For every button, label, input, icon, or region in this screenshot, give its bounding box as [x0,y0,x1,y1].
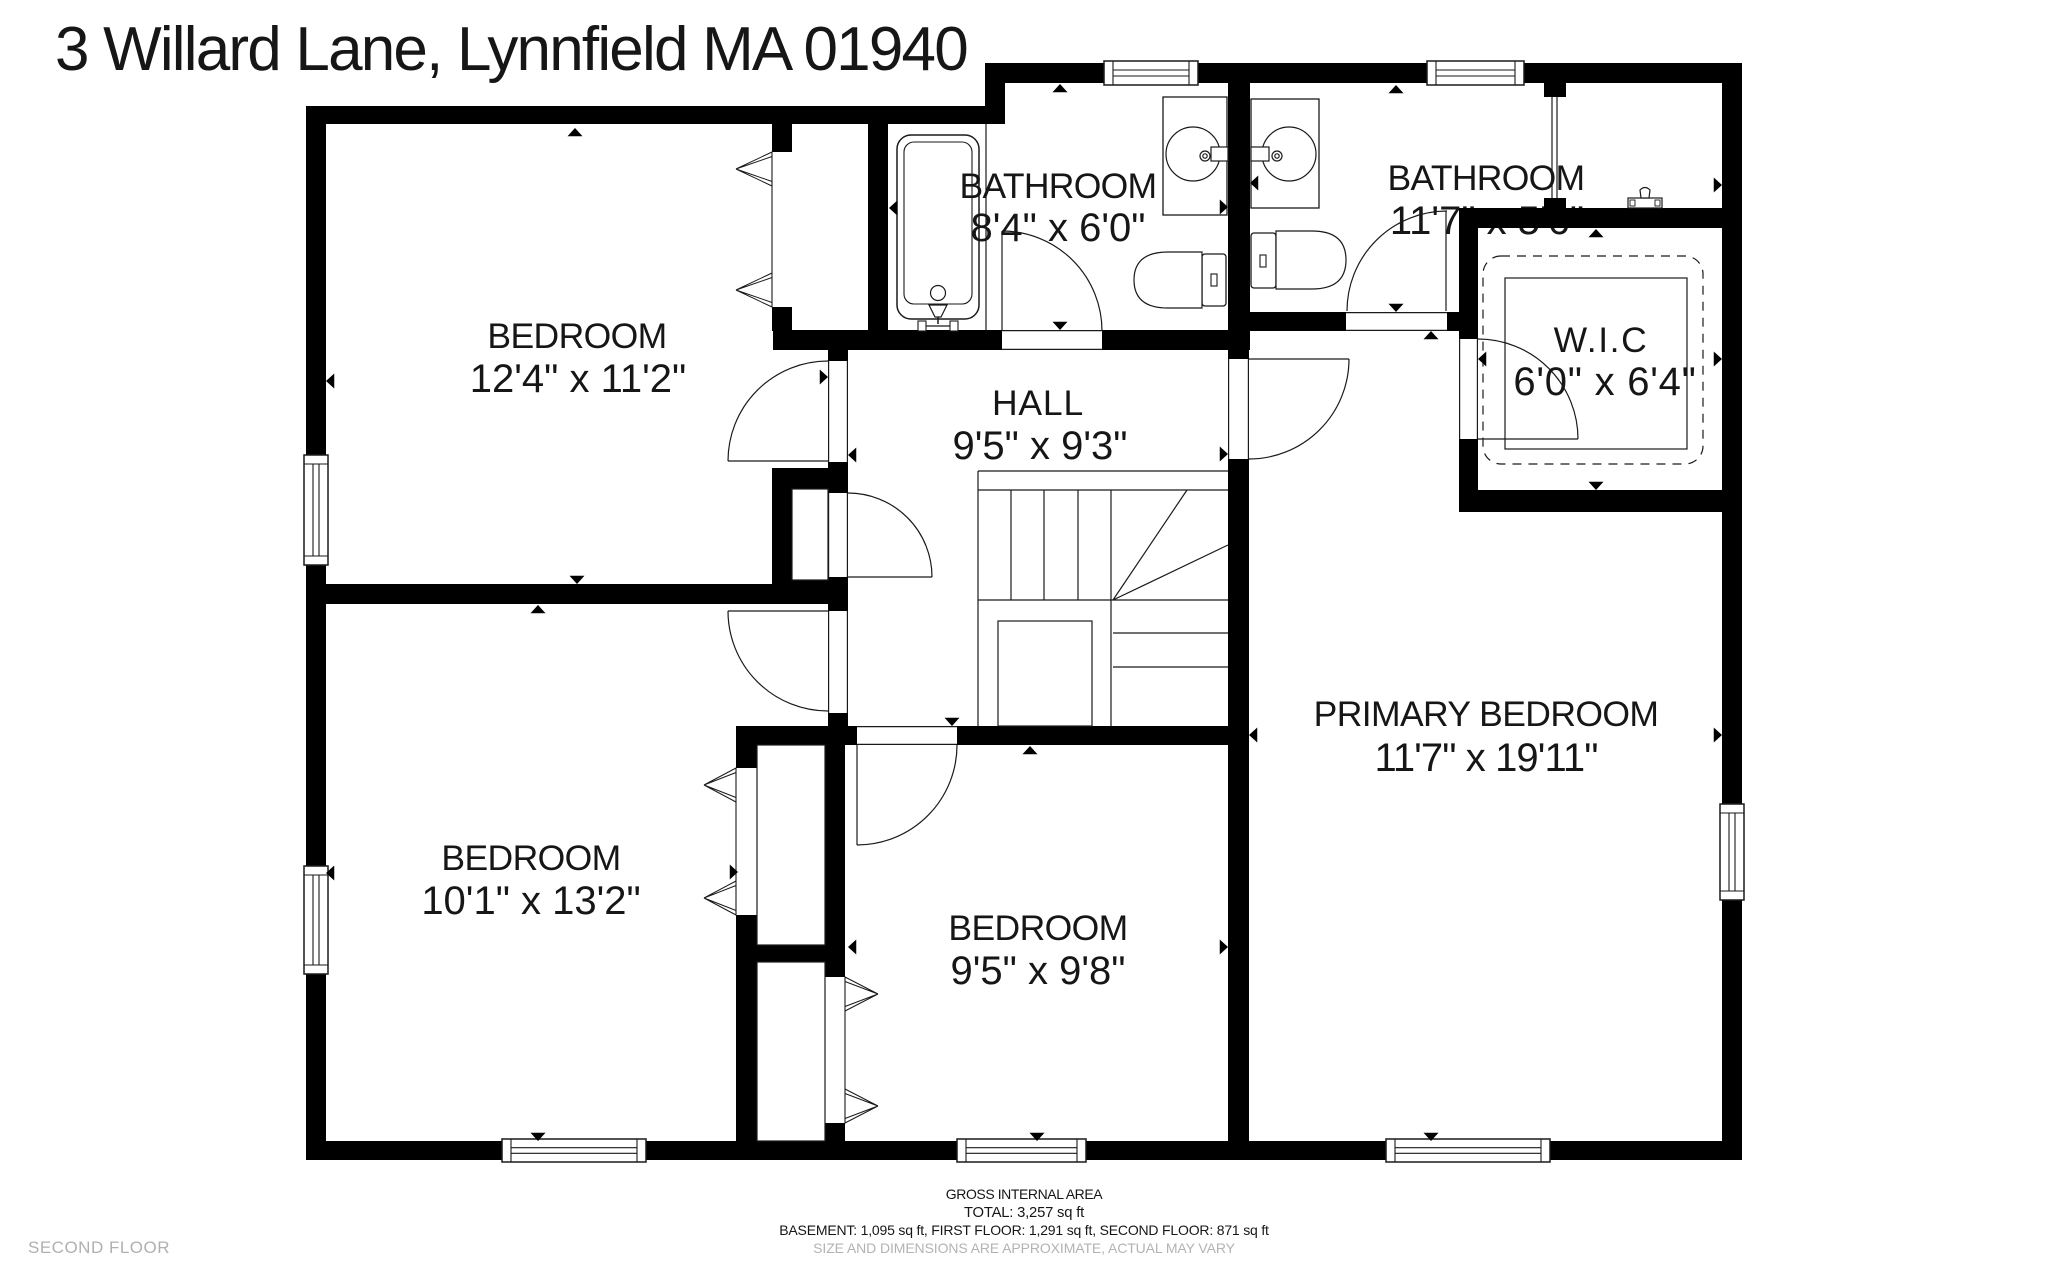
svg-text:PRIMARY BEDROOM: PRIMARY BEDROOM [1314,694,1659,734]
svg-text:11'7" x 19'11": 11'7" x 19'11" [1374,736,1597,780]
svg-text:3 Willard Lane, Lynnfield MA 0: 3 Willard Lane, Lynnfield MA 01940 [55,15,967,84]
svg-text:BEDROOM: BEDROOM [948,908,1127,948]
svg-text:GROSS INTERNAL AREA: GROSS INTERNAL AREA [946,1186,1104,1202]
svg-text:BASEMENT: 1,095 sq ft, FIRST F: BASEMENT: 1,095 sq ft, FIRST FLOOR: 1,29… [779,1222,1269,1238]
svg-text:10'1" x 13'2": 10'1" x 13'2" [421,879,640,923]
svg-text:W.I.C: W.I.C [1554,320,1649,360]
svg-text:BATHROOM: BATHROOM [960,166,1157,206]
svg-text:BATHROOM: BATHROOM [1388,158,1585,198]
svg-text:TOTAL: 3,257 sq ft: TOTAL: 3,257 sq ft [964,1205,1084,1221]
svg-text:6'0" x 6'4": 6'0" x 6'4" [1513,360,1696,404]
svg-text:SIZE AND DIMENSIONS ARE APPROX: SIZE AND DIMENSIONS ARE APPROXIMATE, ACT… [813,1240,1235,1256]
svg-text:9'5" x 9'8": 9'5" x 9'8" [951,949,1126,993]
svg-text:BEDROOM: BEDROOM [487,316,666,356]
svg-text:HALL: HALL [992,383,1084,423]
svg-text:8'4" x 6'0": 8'4" x 6'0" [971,206,1146,250]
svg-text:12'4" x 11'2": 12'4" x 11'2" [470,357,686,401]
svg-text:BEDROOM: BEDROOM [441,838,620,878]
svg-text:SECOND FLOOR: SECOND FLOOR [28,1238,170,1257]
svg-text:9'5" x 9'3": 9'5" x 9'3" [953,424,1128,468]
